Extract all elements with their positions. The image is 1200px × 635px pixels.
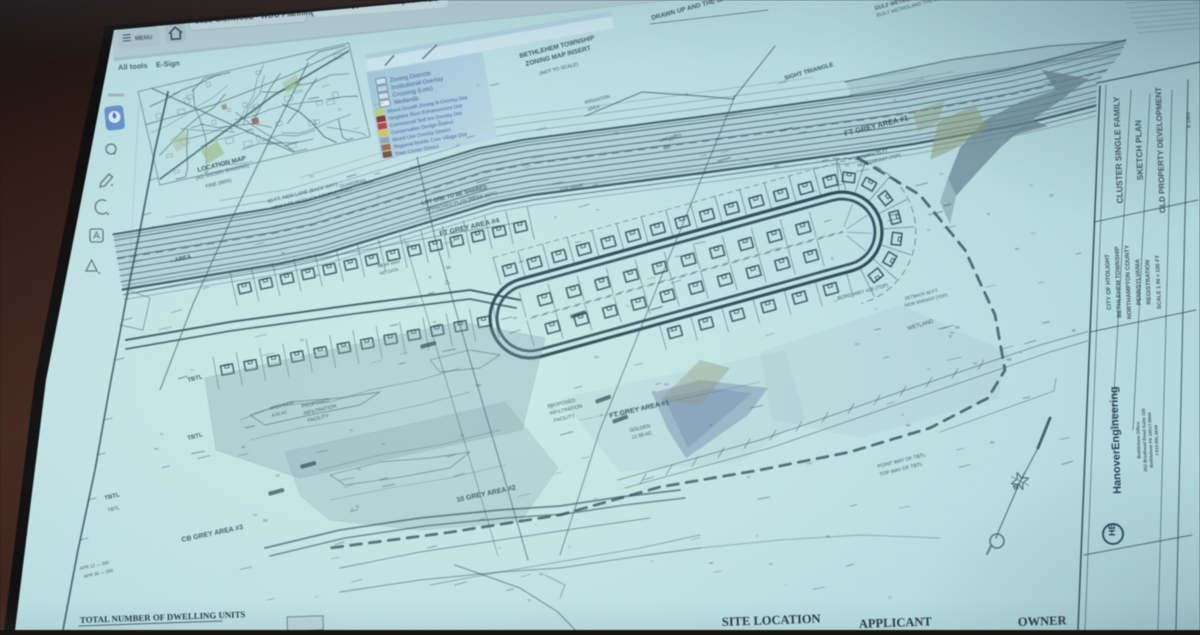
svg-text:OWNER: OWNER	[1018, 613, 1068, 629]
svg-text:E-Sign: E-Sign	[156, 58, 181, 69]
svg-text:HE: HE	[1107, 523, 1117, 536]
svg-text:E 1403: E 1403	[1186, 112, 1193, 128]
svg-text:APPLICANT: APPLICANT	[859, 614, 933, 630]
svg-text:SKETCH PLAN: SKETCH PLAN	[1133, 120, 1145, 181]
